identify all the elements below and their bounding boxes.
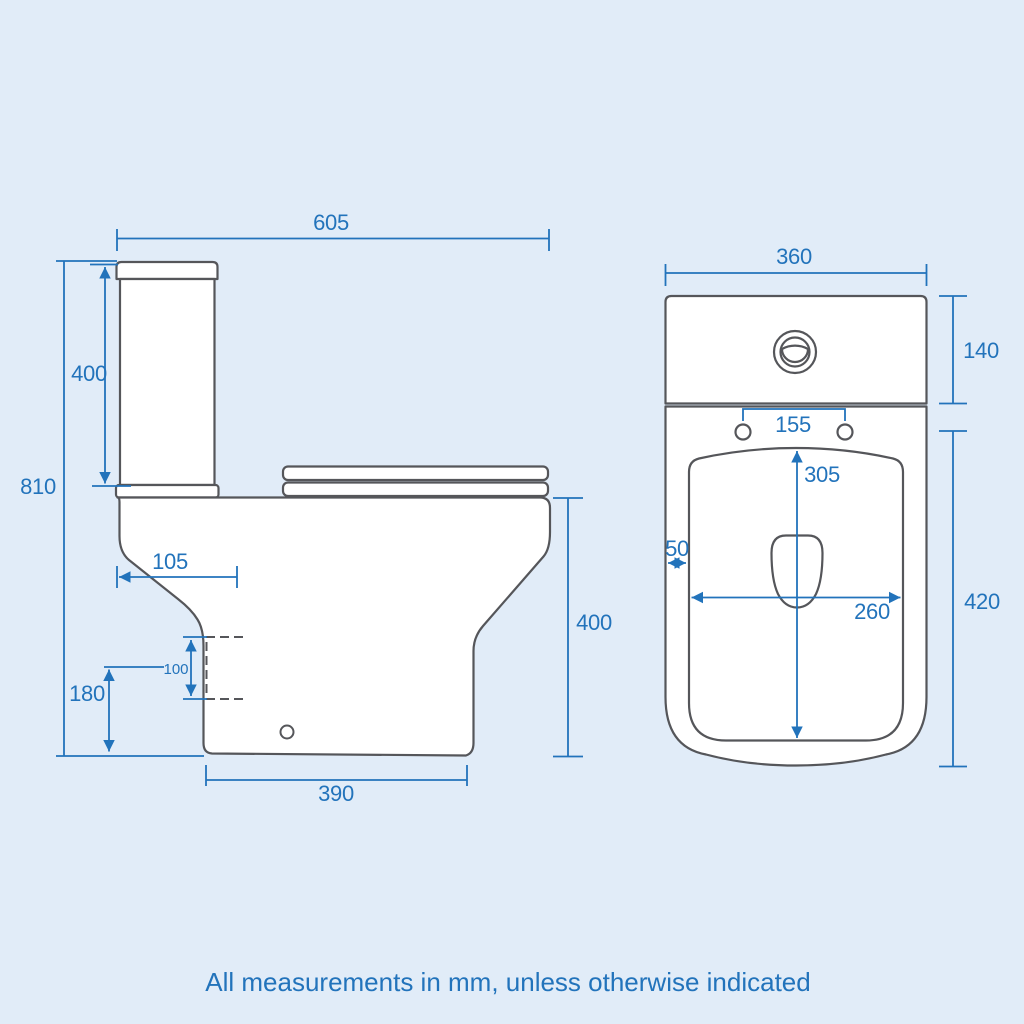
toilet-dimension-diagram: 605 810 400 105 100 [0,0,1024,1024]
seat-fixing-hole-right [838,425,853,440]
dim-label-360: 360 [776,244,812,269]
dim-label-105: 105 [152,549,188,574]
dim-label-140: 140 [963,338,999,363]
dim-pan-height-front: 420 [939,431,1000,767]
seat-fixing-hole-left [736,425,751,440]
front-view: 360 140 155 305 50 260 [665,244,1000,767]
dim-label-155: 155 [775,412,811,437]
side-seat-lid-bar [283,467,548,481]
dim-label-100: 100 [163,661,188,678]
side-pan-body [118,498,551,756]
dim-pan-height-side: 400 [553,498,612,757]
dim-cistern-height-front: 140 [939,296,999,404]
side-cistern-body [120,279,215,485]
dim-label-305: 305 [804,462,840,487]
dim-label-400-cistern: 400 [71,361,107,386]
dim-label-420: 420 [964,589,1000,614]
flush-button [774,331,816,373]
dim-outlet-height: 180 [69,667,164,752]
dim-base-depth: 390 [206,765,467,806]
dim-label-390: 390 [318,781,354,806]
flush-button-split [782,346,808,362]
dim-label-50: 50 [665,536,689,561]
dim-label-810: 810 [20,474,56,499]
measurement-note: All measurements in mm, unless otherwise… [205,967,810,997]
dim-label-180: 180 [69,681,105,706]
side-seat-ring-bar [283,483,548,497]
dim-overall-width: 360 [666,244,927,286]
side-cistern-lid [117,262,218,279]
side-cistern-base [116,485,219,498]
dim-label-260: 260 [854,599,890,624]
dim-label-605: 605 [313,210,349,235]
dim-label-400-pan: 400 [576,610,612,635]
dim-overall-depth: 605 [117,210,549,251]
dim-outlet-size: 100 [163,637,207,699]
dim-rim-width: 50 [665,536,689,563]
side-view: 605 810 400 105 100 [20,210,612,806]
